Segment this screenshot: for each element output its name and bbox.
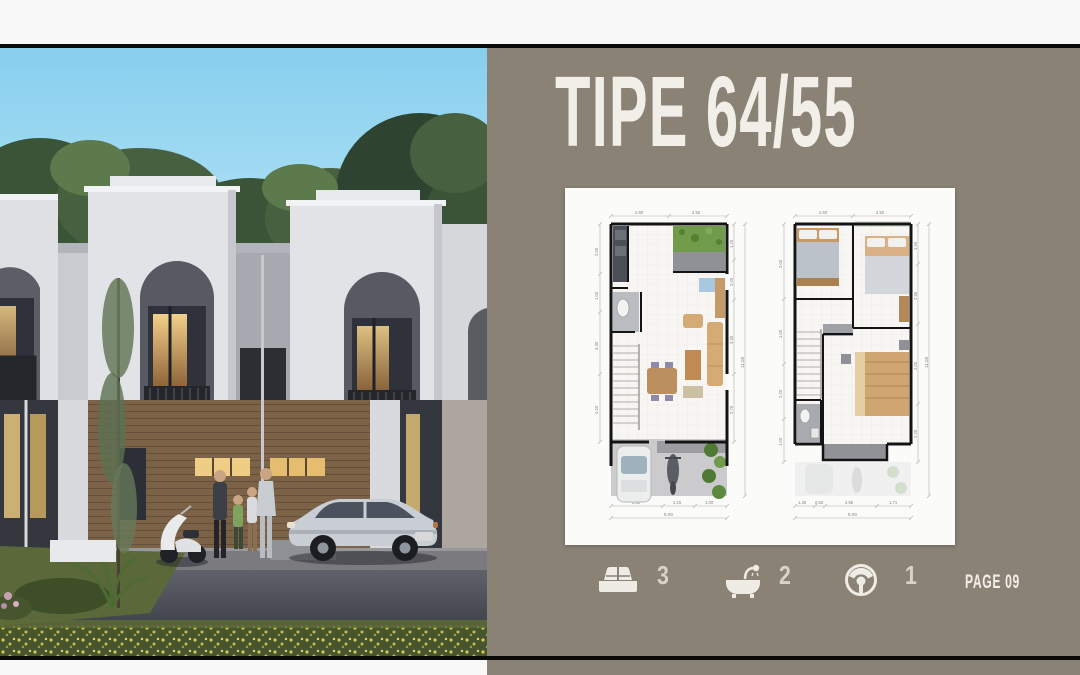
- dim-label: 1.00: [778, 437, 783, 446]
- dim-label: 1.20: [729, 239, 734, 248]
- top-frame-line: [0, 44, 1080, 48]
- bottom-frame-line: [0, 656, 1080, 660]
- dim-label: 2.80: [635, 210, 644, 215]
- dim-label: 2.00: [778, 259, 783, 268]
- dim-label: 1.35: [798, 500, 807, 505]
- dim-label: 4.00: [913, 361, 918, 370]
- bathroom-upper: [797, 404, 821, 442]
- bathtub-icon: [723, 562, 763, 600]
- page-title: TIPE 64/55: [555, 62, 857, 162]
- dim-label: 1.00: [705, 500, 714, 505]
- ghost-carport: [795, 462, 911, 496]
- dim-label: 3.30: [594, 341, 599, 350]
- brochure-page: TIPE 64/55: [0, 0, 1080, 675]
- dim-label: 2.50: [819, 210, 828, 215]
- dim-total-label: 11.00: [924, 356, 929, 368]
- dim-label: 1.00: [594, 291, 599, 300]
- page-number-label: PAGE 09: [965, 572, 1020, 594]
- dim-total-label: 5.00: [848, 512, 857, 517]
- dim-label: 1.50: [913, 241, 918, 250]
- exterior-render-photo: [0, 48, 487, 656]
- dim-label: 4.00: [594, 405, 599, 414]
- unit-stats: 3 2 1 PAGE 09: [487, 556, 1080, 604]
- plan-car: [617, 446, 651, 502]
- dim-label: 2.20: [913, 429, 918, 438]
- floorplan-upper: 2.50 2.50 2.00 1.00 2.20 1.00 1.50 2.95 …: [771, 204, 935, 529]
- dim-label: 1.00: [778, 329, 783, 338]
- carport-count: 1: [905, 560, 917, 591]
- floorplan-ground: 2.80 2.55 2.00 1.00 3.30 4.00 1.20 2.00 …: [587, 204, 751, 529]
- bedrooms-count: 3: [657, 560, 669, 591]
- info-panel: TIPE 64/55: [487, 48, 1080, 675]
- white-planter: [50, 540, 116, 562]
- bottom-grass-flowers: [0, 620, 487, 656]
- dim-total-label: 11.00: [740, 356, 745, 368]
- dim-label: 2.00: [594, 247, 599, 256]
- bathrooms-count: 2: [779, 560, 791, 591]
- dim-label: 0.50: [815, 500, 824, 505]
- dim-label: 2.50: [876, 210, 885, 215]
- dim-label: 2.75: [729, 405, 734, 414]
- dim-label: 3.30: [729, 335, 734, 344]
- dim-label: 2.20: [778, 389, 783, 398]
- balcony: [823, 444, 887, 460]
- bed-icon: [595, 562, 641, 596]
- dim-label: 1.71: [889, 500, 898, 505]
- dim-label: 2.85: [845, 500, 854, 505]
- kitchen: [613, 226, 628, 282]
- bathroom: [613, 292, 639, 332]
- garden: [673, 226, 725, 272]
- dim-total-label: 5.00: [664, 512, 673, 517]
- bedroom-1: [797, 228, 839, 286]
- dim-label: 1.15: [673, 500, 682, 505]
- steering-wheel-icon: [843, 562, 879, 598]
- dim-label: 2.55: [692, 210, 701, 215]
- dim-label: 2.00: [729, 277, 734, 286]
- exterior-render-scene: [0, 48, 487, 656]
- floorplan-card: 2.80 2.55 2.00 1.00 3.30 4.00 1.20 2.00 …: [565, 188, 955, 545]
- dim-label: 2.95: [913, 291, 918, 300]
